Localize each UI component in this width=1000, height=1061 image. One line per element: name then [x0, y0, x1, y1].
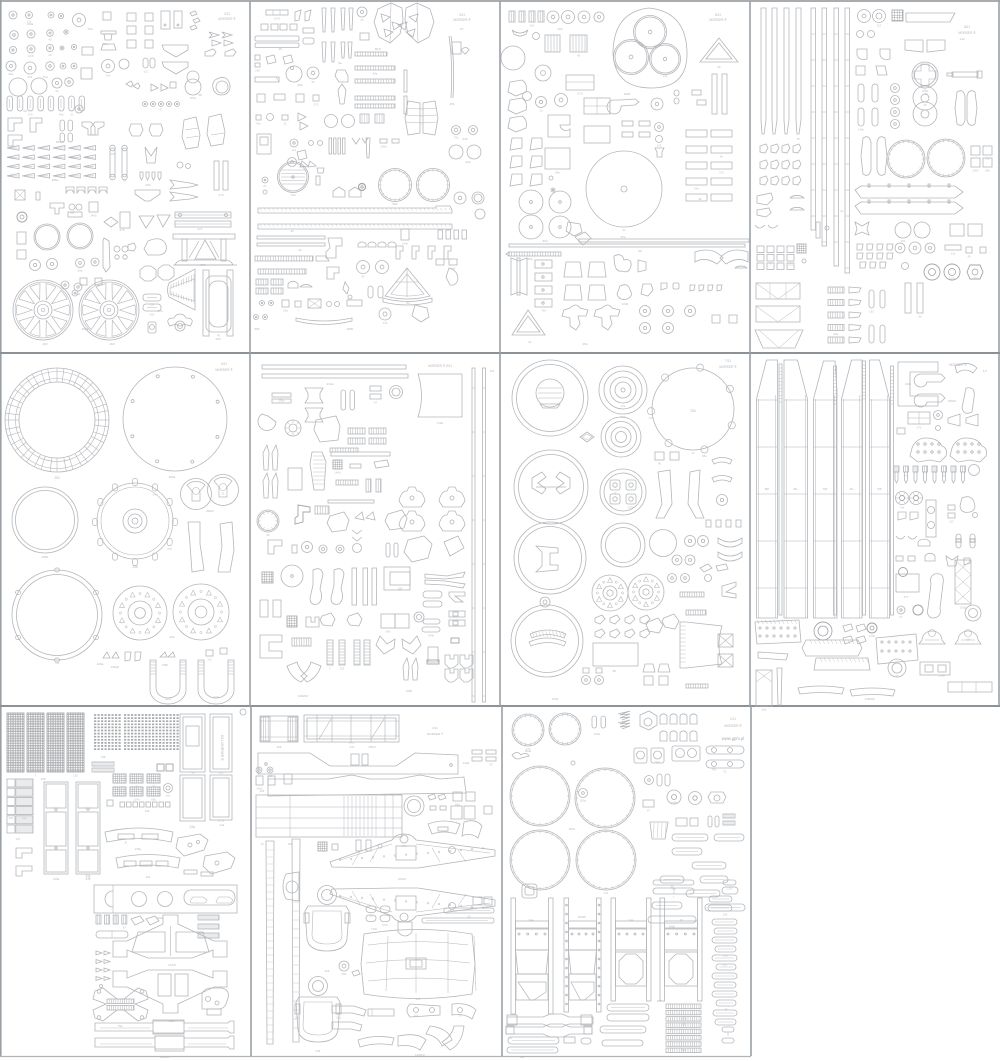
- svg-text:72a: 72a: [290, 193, 295, 197]
- svg-text:2x: 2x: [840, 209, 844, 213]
- svg-text:270: 270: [526, 747, 531, 751]
- svg-text:www.gpm.pl: www.gpm.pl: [722, 736, 745, 741]
- svg-text:2/11: 2/11: [432, 726, 438, 730]
- svg-text:67: 67: [647, 809, 651, 813]
- svg-text:163LP: 163LP: [398, 877, 406, 881]
- svg-text:256b: 256b: [42, 555, 49, 559]
- svg-text:146LP: 146LP: [368, 745, 376, 749]
- svg-text:161: 161: [490, 369, 495, 373]
- svg-text:7/11: 7/11: [725, 359, 731, 363]
- svg-text:24: 24: [679, 918, 683, 922]
- svg-text:MORSER ®: MORSER ®: [719, 365, 737, 369]
- svg-text:MORSER ®: MORSER ®: [724, 724, 742, 728]
- svg-text:88a: 88a: [834, 332, 839, 336]
- svg-text:284LP: 284LP: [56, 140, 65, 144]
- svg-text:88a: 88a: [342, 972, 347, 976]
- svg-text:234MLP: 234MLP: [160, 1055, 170, 1059]
- svg-text:112: 112: [207, 658, 212, 662]
- svg-text:253: 253: [54, 476, 60, 480]
- svg-text:74: 74: [260, 842, 264, 846]
- svg-text:58a: 58a: [985, 169, 990, 173]
- svg-text:4/11: 4/11: [221, 362, 227, 366]
- svg-text:107b: 107b: [949, 277, 956, 281]
- svg-text:26b: 26b: [723, 954, 728, 958]
- svg-text:31: 31: [283, 122, 287, 126]
- svg-text:163b: 163b: [905, 382, 912, 386]
- svg-text:267a: 267a: [569, 827, 576, 831]
- svg-text:163: 163: [28, 75, 33, 79]
- svg-text:135a: 135a: [53, 877, 60, 881]
- svg-text:268a: 268a: [82, 327, 89, 331]
- svg-text:54a: 54a: [86, 874, 91, 878]
- svg-text:99: 99: [361, 275, 365, 279]
- svg-text:133: 133: [788, 263, 793, 267]
- svg-text:MORSER ®: MORSER ®: [427, 732, 444, 736]
- svg-text:107b: 107b: [577, 92, 584, 96]
- svg-text:26b: 26b: [295, 1016, 300, 1020]
- svg-text:45: 45: [613, 492, 617, 496]
- svg-text:45: 45: [724, 1008, 728, 1012]
- svg-text:40: 40: [290, 229, 294, 233]
- svg-text:20b: 20b: [557, 27, 562, 31]
- svg-text:14a: 14a: [220, 823, 225, 827]
- svg-text:163: 163: [255, 69, 260, 73]
- svg-text:264: 264: [145, 183, 150, 187]
- svg-text:246LP: 246LP: [206, 509, 214, 513]
- svg-text:31: 31: [622, 228, 626, 232]
- svg-text:63: 63: [23, 109, 27, 113]
- svg-text:3b: 3b: [698, 197, 702, 201]
- svg-text:76b: 76b: [454, 136, 459, 140]
- svg-text:186: 186: [723, 913, 728, 917]
- svg-text:38: 38: [612, 669, 616, 673]
- svg-text:263: 263: [42, 342, 47, 346]
- svg-text:54a: 54a: [694, 187, 699, 191]
- svg-text:9b: 9b: [458, 1014, 462, 1018]
- svg-text:76b: 76b: [712, 768, 717, 772]
- svg-text:1/7: 1/7: [983, 369, 988, 373]
- svg-text:25a: 25a: [620, 235, 625, 239]
- svg-text:31: 31: [221, 492, 225, 496]
- svg-text:205a: 205a: [580, 799, 587, 803]
- svg-text:23: 23: [973, 276, 977, 280]
- svg-text:107b: 107b: [274, 17, 281, 21]
- svg-text:186: 186: [398, 587, 403, 591]
- svg-text:8/11: 8/11: [715, 13, 721, 17]
- svg-text:8/11: 8/11: [964, 25, 970, 29]
- svg-text:23: 23: [152, 785, 156, 789]
- svg-text:140b: 140b: [869, 634, 876, 638]
- svg-text:223: 223: [165, 697, 170, 701]
- svg-text:140b: 140b: [402, 242, 409, 246]
- svg-text:76b: 76b: [900, 506, 905, 510]
- svg-text:140b: 140b: [348, 741, 355, 745]
- svg-text:8/222P: 8/222P: [578, 916, 586, 919]
- svg-text:262: 262: [169, 635, 174, 639]
- svg-text:240b: 240b: [428, 634, 435, 638]
- svg-text:MORSER ®: MORSER ®: [215, 368, 233, 372]
- svg-text:254: 254: [690, 409, 696, 413]
- svg-text:270: 270: [314, 103, 319, 107]
- svg-text:45: 45: [217, 334, 221, 338]
- svg-text:225LP: 225LP: [948, 399, 956, 403]
- svg-text:23a: 23a: [465, 160, 470, 164]
- svg-text:240b: 240b: [669, 925, 676, 929]
- svg-text:234a: 234a: [327, 382, 334, 386]
- svg-text:88a: 88a: [681, 1048, 686, 1052]
- svg-text:12a: 12a: [76, 292, 81, 296]
- svg-text:226: 226: [325, 969, 330, 973]
- svg-text:98b: 98b: [254, 327, 259, 331]
- svg-text:MORSER ®: MORSER ®: [709, 18, 727, 22]
- svg-text:45: 45: [369, 914, 373, 918]
- svg-text:MORSER ®: MORSER ®: [958, 31, 976, 35]
- svg-text:179a: 179a: [371, 927, 377, 931]
- svg-text:58a: 58a: [455, 803, 460, 807]
- svg-text:MORSER ®: MORSER ®: [453, 18, 471, 22]
- svg-text:107b: 107b: [382, 923, 389, 927]
- svg-text:163: 163: [414, 1014, 419, 1018]
- svg-text:12a: 12a: [22, 816, 27, 820]
- svg-text:67: 67: [923, 87, 927, 91]
- svg-text:133: 133: [73, 774, 78, 778]
- svg-text:54a: 54a: [256, 122, 261, 126]
- svg-text:13a: 13a: [189, 825, 195, 829]
- svg-text:23: 23: [360, 18, 364, 22]
- svg-text:58a: 58a: [283, 309, 288, 313]
- svg-text:107b: 107b: [680, 1016, 687, 1020]
- svg-text:99: 99: [489, 763, 493, 767]
- svg-text:267: 267: [657, 999, 662, 1003]
- svg-text:45a: 45a: [102, 42, 107, 46]
- svg-text:119a: 119a: [437, 421, 443, 425]
- svg-text:133: 133: [150, 303, 155, 307]
- svg-text:153a: 153a: [594, 732, 600, 736]
- svg-text:9b: 9b: [55, 89, 59, 93]
- svg-text:26b: 26b: [621, 415, 626, 419]
- svg-text:205a: 205a: [960, 606, 967, 610]
- svg-text:26b: 26b: [150, 313, 155, 317]
- svg-text:76b: 76b: [106, 74, 111, 78]
- svg-text:2/11: 2/11: [224, 12, 230, 16]
- svg-text:139: 139: [101, 755, 106, 759]
- svg-text:96a: 96a: [527, 257, 532, 261]
- svg-text:88a: 88a: [702, 454, 707, 458]
- svg-text:211: 211: [146, 875, 151, 879]
- svg-text:99: 99: [923, 103, 927, 107]
- svg-text:87: 87: [460, 27, 464, 31]
- svg-text:31: 31: [124, 841, 128, 845]
- svg-text:240b: 240b: [939, 674, 946, 678]
- svg-text:25b: 25b: [449, 102, 454, 106]
- svg-text:238b: 238b: [162, 663, 168, 667]
- svg-text:26b: 26b: [530, 24, 535, 28]
- svg-text:104b: 104b: [622, 302, 629, 306]
- svg-text:67: 67: [374, 401, 378, 405]
- svg-text:9b: 9b: [54, 810, 58, 814]
- svg-text:12a: 12a: [951, 252, 956, 256]
- svg-text:186: 186: [268, 774, 273, 778]
- svg-text:MORSER ®: MORSER ®: [218, 17, 236, 21]
- svg-text:58a: 58a: [762, 708, 767, 712]
- svg-text:23: 23: [467, 915, 471, 919]
- svg-text:54a: 54a: [904, 474, 909, 478]
- svg-text:12a: 12a: [336, 1016, 341, 1020]
- svg-text:107b: 107b: [628, 506, 635, 510]
- svg-text:45b: 45b: [297, 83, 302, 87]
- svg-text:ML: ML: [794, 487, 798, 491]
- svg-text:49: 49: [278, 47, 282, 51]
- svg-text:67: 67: [899, 615, 903, 619]
- svg-text:67: 67: [159, 108, 163, 112]
- svg-text:240b: 240b: [90, 214, 97, 218]
- svg-text:164MLP: 164MLP: [415, 1053, 425, 1057]
- svg-text:186: 186: [70, 211, 75, 215]
- svg-text:2b: 2b: [717, 65, 721, 69]
- svg-text:88a: 88a: [555, 171, 560, 175]
- svg-text:107b: 107b: [28, 54, 35, 58]
- svg-text:DL: DL: [850, 487, 854, 491]
- svg-text:45: 45: [967, 255, 971, 259]
- svg-text:76b: 76b: [541, 309, 546, 313]
- svg-text:31: 31: [723, 770, 727, 774]
- svg-text:258: 258: [132, 565, 138, 569]
- svg-text:3/11: 3/11: [459, 13, 465, 17]
- svg-text:58a: 58a: [386, 630, 391, 634]
- svg-text:240b: 240b: [256, 787, 263, 791]
- svg-text:186: 186: [985, 157, 990, 161]
- svg-text:277: 277: [904, 595, 909, 599]
- svg-text:12a: 12a: [621, 404, 626, 408]
- svg-text:205a: 205a: [278, 399, 285, 403]
- svg-text:58: 58: [198, 93, 202, 97]
- svg-text:186: 186: [451, 267, 456, 271]
- svg-text:255b: 255b: [347, 327, 354, 331]
- svg-text:9b: 9b: [658, 462, 662, 466]
- svg-text:240b: 240b: [259, 287, 266, 291]
- svg-text:9b: 9b: [720, 155, 724, 159]
- svg-text:76b: 76b: [87, 27, 92, 31]
- svg-text:143: 143: [959, 37, 964, 41]
- svg-text:112: 112: [877, 24, 882, 28]
- svg-text:270a: 270a: [552, 697, 559, 701]
- svg-text:88a: 88a: [9, 72, 14, 76]
- svg-text:112: 112: [949, 520, 954, 524]
- svg-text:112: 112: [604, 891, 609, 895]
- svg-text:5a: 5a: [338, 61, 342, 65]
- svg-text:9b: 9b: [311, 80, 315, 84]
- svg-text:45: 45: [48, 38, 52, 42]
- svg-text:263: 263: [109, 342, 114, 346]
- svg-text:240MLP: 240MLP: [298, 694, 309, 698]
- svg-text:230b: 230b: [406, 689, 413, 693]
- svg-text:12a: 12a: [27, 20, 32, 24]
- svg-text:271: 271: [197, 227, 202, 231]
- svg-text:12a: 12a: [722, 963, 727, 967]
- svg-text:23b: 23b: [462, 137, 467, 141]
- svg-text:231: 231: [350, 745, 355, 749]
- svg-text:143a: 143a: [463, 761, 470, 765]
- svg-text:245: 245: [416, 997, 421, 1001]
- svg-text:137: 137: [16, 837, 21, 841]
- svg-text:112: 112: [292, 148, 297, 152]
- svg-text:270: 270: [218, 193, 223, 197]
- svg-text:75a: 75a: [118, 1024, 123, 1028]
- svg-text:46b: 46b: [582, 342, 587, 346]
- svg-text:54a: 54a: [655, 760, 660, 764]
- svg-text:278: 278: [119, 228, 124, 232]
- svg-text:58a: 58a: [671, 887, 676, 891]
- svg-text:140b: 140b: [858, 128, 865, 132]
- svg-text:76: 76: [796, 137, 800, 141]
- svg-text:41: 41: [298, 248, 302, 252]
- svg-text:54a: 54a: [153, 492, 158, 496]
- svg-text:1/11: 1/11: [730, 717, 736, 721]
- svg-text:163: 163: [166, 794, 171, 798]
- svg-text:45: 45: [577, 54, 581, 58]
- svg-text:249a: 249a: [97, 662, 104, 666]
- svg-text:112: 112: [219, 771, 224, 775]
- svg-text:76b: 76b: [190, 771, 195, 775]
- svg-text:9b: 9b: [918, 315, 922, 319]
- svg-text:240a(P: 240a(P: [111, 665, 120, 669]
- svg-text:99: 99: [266, 533, 270, 537]
- svg-text:266: 266: [215, 337, 220, 341]
- svg-text:23: 23: [691, 451, 695, 455]
- svg-text:163: 163: [649, 416, 654, 420]
- svg-text:205a: 205a: [190, 96, 197, 100]
- svg-text:31: 31: [942, 474, 946, 478]
- svg-text:270: 270: [719, 171, 724, 175]
- svg-text:163: 163: [869, 310, 874, 314]
- svg-text:26b: 26b: [9, 816, 14, 820]
- svg-text:12a: 12a: [663, 74, 668, 78]
- svg-text:172LP: 172LP: [168, 963, 176, 967]
- svg-text:26b: 26b: [901, 239, 906, 243]
- svg-text:285a: 285a: [52, 178, 59, 182]
- svg-text:MORSER ® 5/11: MORSER ® 5/11: [428, 364, 452, 368]
- svg-text:107b: 107b: [133, 798, 140, 802]
- svg-text:205a: 205a: [380, 145, 387, 149]
- svg-text:163: 163: [508, 1036, 513, 1040]
- svg-text:226: 226: [316, 1049, 321, 1053]
- svg-text:88a: 88a: [151, 798, 156, 802]
- svg-text:76b: 76b: [55, 661, 60, 665]
- svg-text:215a: 215a: [135, 847, 142, 851]
- svg-text:67: 67: [123, 926, 127, 930]
- svg-text:59: 59: [638, 249, 642, 253]
- svg-text:163: 163: [657, 144, 662, 148]
- svg-text:56b: 56b: [392, 202, 397, 206]
- svg-text:133: 133: [383, 321, 388, 325]
- svg-text:2c: 2c: [528, 340, 532, 344]
- svg-text:140b: 140b: [671, 801, 678, 805]
- svg-text:73a: 73a: [42, 75, 47, 79]
- svg-text:100b: 100b: [624, 92, 631, 96]
- svg-text:138: 138: [40, 777, 45, 781]
- svg-text:270: 270: [167, 547, 172, 551]
- svg-text:24a: 24a: [629, 918, 634, 922]
- svg-text:163: 163: [157, 309, 162, 313]
- svg-text:MLP: MLP: [375, 47, 381, 51]
- svg-text:240MLP: 240MLP: [865, 697, 876, 701]
- svg-text:133: 133: [727, 887, 732, 891]
- svg-text:140b: 140b: [334, 471, 341, 475]
- svg-text:271: 271: [200, 263, 205, 267]
- svg-text:94: 94: [406, 301, 410, 305]
- svg-text:259a: 259a: [169, 475, 176, 479]
- svg-text:133: 133: [340, 667, 345, 671]
- svg-text:112: 112: [143, 70, 148, 74]
- svg-text:23: 23: [539, 109, 543, 113]
- svg-text:54a: 54a: [59, 113, 64, 117]
- svg-text:24a: 24a: [529, 918, 534, 922]
- svg-text:6/11 MORSER ®: 6/11 MORSER ®: [220, 735, 224, 761]
- svg-text:186: 186: [966, 638, 971, 642]
- svg-text:99: 99: [123, 179, 127, 183]
- svg-text:205a: 205a: [218, 819, 225, 823]
- svg-text:23: 23: [682, 1023, 686, 1027]
- svg-text:31: 31: [70, 113, 74, 117]
- svg-text:MP: MP: [823, 487, 828, 491]
- svg-text:206: 206: [277, 745, 282, 749]
- svg-text:88a: 88a: [373, 72, 378, 76]
- svg-text:MP: MP: [877, 487, 882, 491]
- svg-text:270: 270: [28, 113, 33, 117]
- svg-text:15a: 15a: [520, 1055, 525, 1059]
- svg-text:45: 45: [135, 785, 139, 789]
- svg-text:140b: 140b: [109, 152, 116, 156]
- svg-text:133: 133: [402, 844, 407, 848]
- svg-text:MP: MP: [765, 487, 770, 491]
- svg-text:MORSER ®: MORSER ®: [949, 363, 967, 367]
- svg-text:23: 23: [48, 53, 52, 57]
- svg-text:146: 146: [145, 809, 150, 813]
- svg-text:270: 270: [917, 426, 922, 430]
- svg-text:90a: 90a: [542, 239, 547, 243]
- svg-text:99: 99: [895, 674, 899, 678]
- svg-text:58a: 58a: [78, 269, 83, 273]
- svg-text:224: 224: [213, 695, 218, 699]
- svg-text:240b: 240b: [972, 169, 979, 173]
- svg-text:67: 67: [263, 184, 267, 188]
